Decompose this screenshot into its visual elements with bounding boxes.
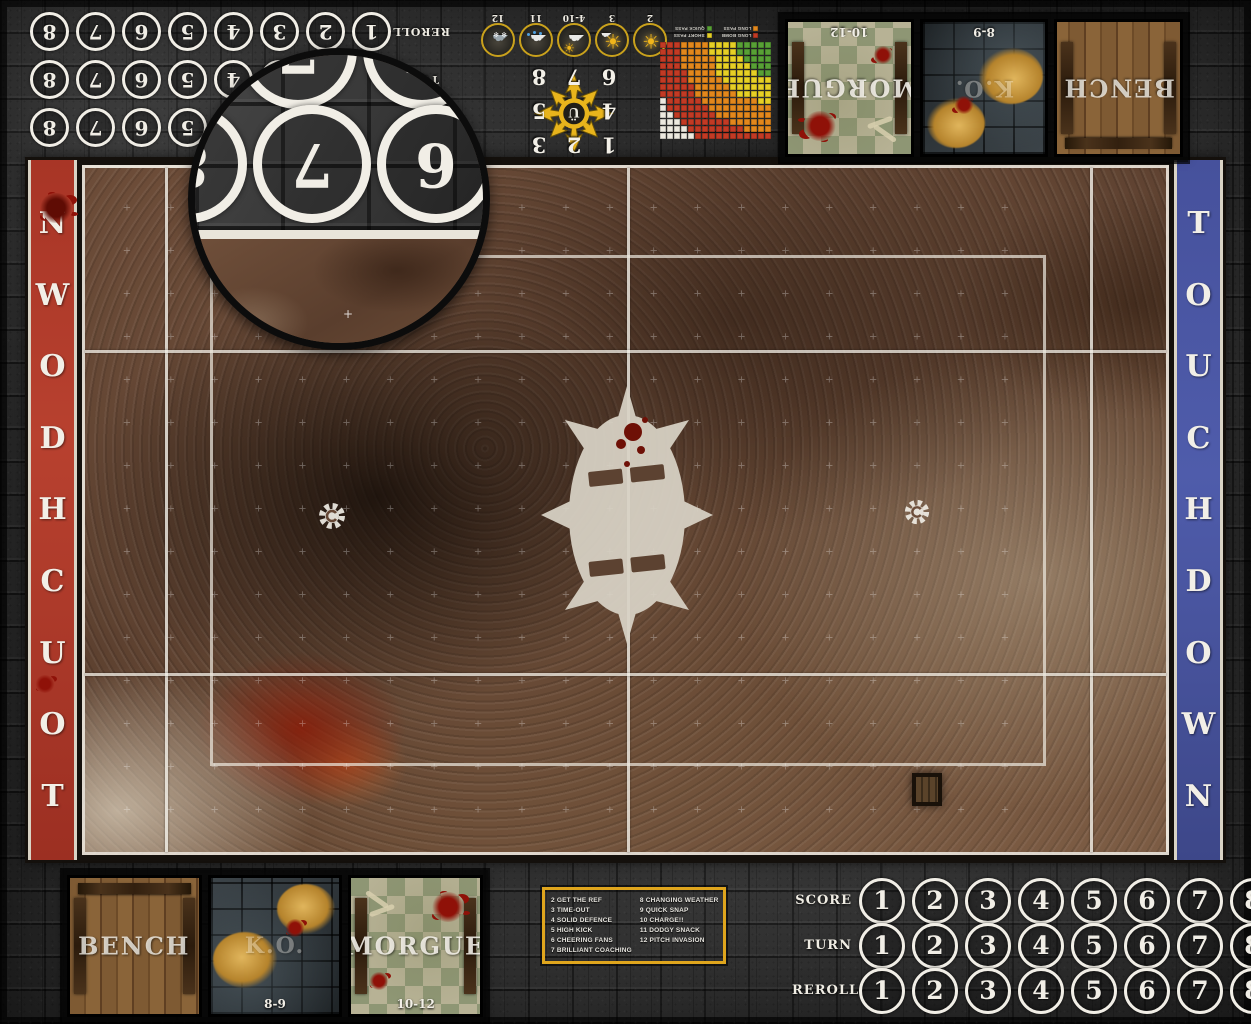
grid-cross: + [474,375,482,386]
range-ruler-chart: LONG BOMBLONG PASSSHORT PASSQUICK PASS [648,26,784,139]
legend-item: LONG PASS [722,26,759,31]
tracker-row: REROLL12345678 [58,8,450,56]
range-ruler-cell [689,63,695,69]
range-ruler-cell [682,105,688,111]
grid-cross: + [386,547,394,558]
touchdown-letter: N [1185,779,1212,814]
range-ruler-cell [682,119,688,125]
grid-cross: + [825,805,833,816]
grid-cross: + [123,418,131,429]
tracker-row: SCORE12345678 [792,878,1232,923]
scatter-number: 2 [557,129,591,162]
grid-cross: + [1001,504,1009,515]
grid-cross: + [167,375,175,386]
grid-cross: + [737,332,745,343]
range-ruler-cell [696,49,702,55]
grid-cross: + [518,289,526,300]
kickoff-event: 9 QUICK SNAP [640,907,719,914]
range-ruler-cell [752,84,758,90]
legend-color-chip [753,33,758,38]
blood-splatter [873,46,893,64]
grid-cross: + [825,418,833,429]
range-ruler-cell [675,112,681,118]
magnifier-mud [195,239,483,343]
grid-cross: + [825,547,833,558]
range-ruler-cell [668,77,674,83]
range-ruler-cell [731,63,737,69]
grid-cross: + [913,719,921,730]
range-ruler-cell [682,84,688,90]
grid-cross: + [167,719,175,730]
grid-cross: + [210,805,218,816]
range-ruler-cell [738,49,744,55]
grid-cross: + [737,547,745,558]
legend-column: SHORT PASSQUICK PASS [674,26,712,38]
range-ruler-cell [675,42,681,48]
grid-cross: + [518,590,526,601]
range-ruler-cell [745,105,751,111]
kickoff-table-left-column: 2 GET THE REF3 TIME-OUT4 SOLID DEFENCE5 … [551,897,632,954]
grid-cross: + [693,676,701,687]
touchdown-letter: H [1184,492,1212,527]
range-ruler-cell [759,77,765,83]
range-ruler-cell [738,56,744,62]
number-circle: 1 [352,13,391,52]
range-ruler-cell [717,98,723,104]
range-ruler-cell [759,91,765,97]
grid-cross: + [474,762,482,773]
grid-cross: + [913,375,921,386]
wood-beam [78,883,191,894]
range-ruler-cell [661,77,667,83]
range-ruler-cell [703,77,709,83]
grid-cross: + [298,504,306,515]
range-ruler-cell [745,49,751,55]
grid-cross: + [430,504,438,515]
grid-cross: + [254,547,262,558]
cloud-glyph: ☁ [601,31,612,42]
dugout-label: K.O. [954,75,1014,101]
number-circle: 8 [30,13,69,52]
range-ruler-cell [717,119,723,125]
grid-cross: + [430,547,438,558]
range-ruler-cell [696,56,702,62]
range-ruler-cell [738,126,744,132]
legend-color-chip [707,26,712,31]
grid-cross: + [957,246,965,257]
grid-cross: + [254,719,262,730]
grid-cross: + [210,633,218,644]
grid-cross: + [298,547,306,558]
range-ruler-cell [703,133,709,139]
dugout-label: MORGUE [348,932,483,961]
touchdown-letter: W [1182,707,1216,742]
range-ruler-cell [675,119,681,125]
grid-cross: + [606,289,614,300]
range-ruler-cell [766,126,772,132]
range-ruler-cell [682,63,688,69]
range-ruler-cell [752,77,758,83]
magnifier-boundary-line [195,230,483,239]
range-ruler-cell [745,133,751,139]
grid-cross: + [781,590,789,601]
touchdown-letter: H [38,492,66,527]
grid-cross: + [562,805,570,816]
range-ruler-cell [731,77,737,83]
grid-cross: + [913,246,921,257]
range-ruler-cell [661,63,667,69]
dugout-dice-range: 10-12 [830,25,868,39]
scatter-number: 1 [592,129,626,162]
range-ruler-cell [675,84,681,90]
range-ruler-legend: LONG BOMBLONG PASSSHORT PASSQUICK PASS [648,26,784,38]
touchdown-letter: O [39,707,65,742]
grid-cross: + [781,332,789,343]
grid-cross: + [518,246,526,257]
legend-label: SHORT PASS [674,33,705,38]
grid-cross: + [518,719,526,730]
weather-table: ☀2☀☁3☀☁4-10☁11☁❄❄12 [498,12,650,57]
grid-cross: + [430,762,438,773]
legend-label: QUICK PASS [675,26,705,31]
range-ruler-cell [731,133,737,139]
grid-cross: + [606,203,614,214]
grid-cross: + [737,504,745,515]
grid-cross: + [957,289,965,300]
grid-cross: + [474,719,482,730]
grid-cross: + [1001,547,1009,558]
grid-cross: + [825,289,833,300]
legend-column: LONG BOMBLONG PASS [722,26,759,38]
kickoff-event: 8 CHANGING WEATHER [640,897,719,904]
number-circle: 7 [1177,923,1223,969]
number-circle: 3 [965,968,1011,1014]
range-ruler-cell [738,42,744,48]
grid-cross: + [210,547,218,558]
number-circle: 6 [122,61,161,100]
range-ruler-cell [668,112,674,118]
grid-cross: + [737,203,745,214]
range-ruler-cell [759,98,765,104]
grid-cross: + [825,375,833,386]
range-ruler-cell [661,105,667,111]
grid-cross: + [123,289,131,300]
grid-cross: + [781,289,789,300]
scatter-number [557,95,591,128]
grid-cross: + [957,590,965,601]
magnified-number-circle: 8 [188,105,247,223]
range-ruler-cell [668,63,674,69]
range-ruler-cell [682,56,688,62]
grid-cross: + [957,504,965,515]
range-ruler-cell [745,119,751,125]
grid-cross: + [298,719,306,730]
grid-cross: + [342,418,350,429]
grid-cross: + [167,289,175,300]
range-ruler-cell [689,133,695,139]
legend-item: QUICK PASS [674,26,712,31]
grid-cross: + [386,590,394,601]
grid-cross: + [957,461,965,472]
range-ruler-cell [668,56,674,62]
grid-cross: + [254,375,262,386]
range-ruler-cell [752,119,758,125]
grid-cross: + [518,805,526,816]
grid-cross: + [1001,719,1009,730]
grid-cross: + [254,418,262,429]
kickoff-event: 2 GET THE REF [551,897,632,904]
grid-cross: + [913,289,921,300]
grid-cross: + [430,719,438,730]
grid-cross: + [825,246,833,257]
range-ruler-cell [717,133,723,139]
wood-beam [1065,138,1172,149]
kickoff-event-table: 2 GET THE REF3 TIME-OUT4 SOLID DEFENCE5 … [542,887,726,964]
maker-gear-logo [317,501,347,536]
grid-cross: + [518,332,526,343]
range-ruler-cell [745,126,751,132]
range-ruler-cell [668,42,674,48]
range-ruler-cell [710,133,716,139]
range-ruler-cell [738,91,744,97]
range-ruler-cell [661,70,667,76]
grid-cross: + [342,375,350,386]
grid-cross: + [1001,418,1009,429]
grid-cross: + [869,719,877,730]
range-ruler-cell [766,84,772,90]
dugout-bench-box: BENCH [1054,19,1183,157]
range-ruler-cell [682,42,688,48]
range-ruler-cell [682,126,688,132]
range-ruler-cell [731,112,737,118]
range-ruler-cell [668,91,674,97]
number-circle: 2 [912,878,958,924]
range-ruler-cell [703,112,709,118]
grid-cross: + [693,762,701,773]
grid-cross: + [693,332,701,343]
grid-cross: + [210,590,218,601]
tracker-label: SCORE [792,893,852,908]
range-ruler-cell [710,105,716,111]
range-ruler-cell [710,84,716,90]
range-ruler-cell [752,42,758,48]
grid-cross: + [474,633,482,644]
grid-cross: + [167,676,175,687]
range-ruler-cell [766,133,772,139]
range-ruler-cell [724,56,730,62]
range-ruler-cell [738,77,744,83]
grid-cross: + [737,633,745,644]
range-ruler-cell [766,56,772,62]
range-ruler-cell [661,112,667,118]
range-ruler-cell [682,98,688,104]
grid-cross: + [781,504,789,515]
number-circle: 7 [1177,968,1223,1014]
grid-cross: + [518,504,526,515]
magnified-number-circle: 7 [239,48,357,109]
range-ruler-cell [689,77,695,83]
weather-entry: ☁❄❄12 [481,12,515,57]
grid-cross: + [123,461,131,472]
grid-cross: + [913,676,921,687]
dugout-morgue-box: MORGUE10-12 [348,875,483,1017]
grid-cross: + [957,203,965,214]
kickoff-event: 7 BRILLIANT COACHING [551,947,632,954]
range-ruler-cell [689,49,695,55]
grid-cross: + [562,676,570,687]
range-ruler-cell [738,112,744,118]
grid-cross: + [474,547,482,558]
range-ruler-cell [696,84,702,90]
range-ruler-cell [703,105,709,111]
range-ruler-cell [724,112,730,118]
grid-cross: + [957,719,965,730]
range-ruler-cell [682,49,688,55]
grid-cross: + [562,203,570,214]
grid-cross: + [386,633,394,644]
grid-cross: + [825,633,833,644]
grid-cross: + [737,719,745,730]
range-ruler-cell [710,77,716,83]
range-ruler-cell [717,42,723,48]
range-ruler-cell [745,63,751,69]
range-ruler-cell [703,119,709,125]
touchdown-banner-left: NWODHCUOT [28,160,77,860]
range-ruler-cell [689,105,695,111]
grid-cross: + [518,762,526,773]
touchdown-letter: O [39,349,65,384]
grid-cross: + [254,504,262,515]
rain-cloud-icon: ☁ [519,23,553,57]
grid-cross: + [386,762,394,773]
number-circle: 1 [859,923,905,969]
range-ruler-cell [731,49,737,55]
range-ruler-cell [759,70,765,76]
range-ruler-cell [745,91,751,97]
range-ruler-cell [689,42,695,48]
blood-splatter [431,892,465,922]
touchdown-letter: C [41,564,65,599]
range-ruler-cell [668,70,674,76]
grid-cross: + [825,504,833,515]
grid-cross: + [210,676,218,687]
weather-dice-value: 11 [530,12,543,22]
range-ruler-cell [738,63,744,69]
grid-cross: + [737,805,745,816]
blood-splatter [39,193,73,223]
grid-cross: + [649,246,657,257]
dugout-bench-box: BENCH [67,875,202,1017]
range-ruler-cell [710,49,716,55]
number-circle: 6 [122,13,161,52]
range-ruler-cell [766,98,772,104]
cloud-sun-icon: ☀☁ [557,23,591,57]
grid-cross: + [869,590,877,601]
grid-cross: + [1001,203,1009,214]
range-ruler-cell [724,49,730,55]
range-ruler-cell [696,63,702,69]
grid-cross: + [869,375,877,386]
number-circle: 8 [1230,923,1251,969]
number-circle: 6 [1124,878,1170,924]
range-ruler-cell [668,84,674,90]
grid-cross: + [210,762,218,773]
grid-cross: + [386,504,394,515]
range-ruler-cell [675,56,681,62]
grid-cross: + [254,633,262,644]
grid-cross: + [606,676,614,687]
grid-cross: + [1001,762,1009,773]
range-ruler-cell [717,63,723,69]
range-ruler-cell [717,77,723,83]
grid-cross: + [737,762,745,773]
range-ruler-cell [696,77,702,83]
touchdown-letter: U [39,636,65,671]
grid-cross: + [474,805,482,816]
range-ruler-cell [731,42,737,48]
grid-cross: + [825,719,833,730]
range-ruler-cell [696,70,702,76]
kickoff-event: 6 CHEERING FANS [551,937,632,944]
range-ruler-cell [675,91,681,97]
range-ruler-cell [738,70,744,76]
range-ruler-cell [724,42,730,48]
grid-cross: + [781,719,789,730]
grid-cross: + [123,676,131,687]
range-ruler-cell [668,49,674,55]
range-ruler-cell [752,133,758,139]
range-ruler-cell [738,105,744,111]
grid-cross: + [649,332,657,343]
magnified-number-circle: 7 [253,105,371,223]
range-ruler-cell [766,42,772,48]
grid-cross: + [298,762,306,773]
range-ruler-cell [724,119,730,125]
grid-cross: + [737,590,745,601]
range-ruler-cell [703,91,709,97]
number-circle: 1 [859,878,905,924]
dugout-bottom-left: BENCHK.O.8-9MORGUE10-12 [62,870,488,1022]
grid-cross: + [825,762,833,773]
range-ruler-cell [682,133,688,139]
dugout-label: MORGUE [785,74,914,103]
grid-cross: + [123,203,131,214]
blood-splatter [803,111,837,141]
grid-cross: + [342,762,350,773]
grid-cross: + [649,203,657,214]
number-circle: 6 [1124,968,1170,1014]
grid-cross: + [781,762,789,773]
grid-cross: + [298,461,306,472]
tracker-label: REROLL [792,983,852,998]
range-ruler-cell [759,126,765,132]
touchdown-letter: T [41,779,63,814]
range-ruler-cell [703,56,709,62]
grid-cross: + [869,504,877,515]
grid-cross: + [913,547,921,558]
grid-cross: + [123,590,131,601]
range-ruler-cell [703,63,709,69]
grid-cross: + [781,676,789,687]
touchdown-banner-right: TOUCHDOWN [1174,160,1223,860]
grid-cross: + [737,375,745,386]
range-ruler-cell [752,56,758,62]
range-ruler-cell [710,56,716,62]
legend-label: LONG PASS [723,26,751,31]
grid-cross: + [737,418,745,429]
grid-cross: + [649,289,657,300]
grid-cross: + [518,203,526,214]
